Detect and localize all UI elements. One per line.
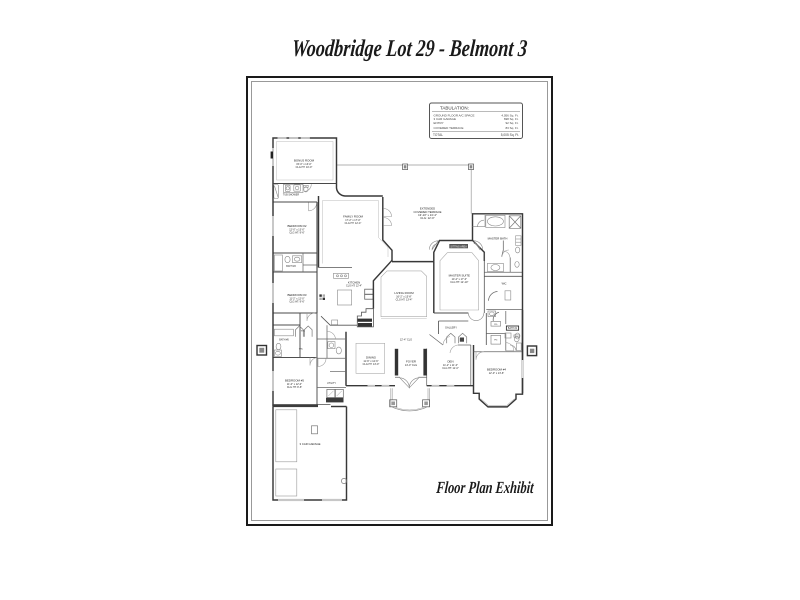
svg-text:BATH #3: BATH #3 bbox=[286, 265, 296, 268]
svg-text:CLG HT: 12'-4": CLG HT: 12'-4" bbox=[345, 222, 362, 225]
svg-text:ENTRY: ENTRY bbox=[434, 121, 444, 125]
svg-text:83 Sq. Ft.: 83 Sq. Ft. bbox=[505, 126, 518, 130]
svg-text:5,005 Sq. Ft.: 5,005 Sq. Ft. bbox=[501, 133, 519, 137]
svg-text:CLG HT: 12'-10": CLG HT: 12'-10" bbox=[450, 281, 468, 284]
svg-text:WIC: WIC bbox=[299, 348, 304, 350]
svg-text:UTILITY: UTILITY bbox=[327, 382, 336, 385]
svg-text:WIC: WIC bbox=[502, 282, 507, 285]
svg-text:3 CAR GARAGE: 3 CAR GARAGE bbox=[300, 442, 321, 446]
svg-text:CLG HT: 13'-4": CLG HT: 13'-4" bbox=[396, 298, 413, 301]
svg-text:12'-4" CLG: 12'-4" CLG bbox=[400, 339, 412, 342]
svg-text:MASTER BATH: MASTER BATH bbox=[488, 237, 508, 241]
svg-text:CLG HT: 11'-0": CLG HT: 11'-0" bbox=[442, 367, 459, 370]
svg-text:CLG HT: 10'-0": CLG HT: 10'-0" bbox=[296, 166, 313, 169]
svg-text:SITTING AREA: SITTING AREA bbox=[450, 245, 467, 248]
svg-text:CLG: 12'-0": CLG: 12'-0" bbox=[420, 216, 434, 220]
svg-text:GALLERY: GALLERY bbox=[445, 326, 457, 330]
svg-text:COVERED TERRACE: COVERED TERRACE bbox=[434, 126, 464, 130]
svg-text:CLG HT: 9'-6": CLG HT: 9'-6" bbox=[287, 386, 302, 389]
svg-text:92 Sq. Ft.: 92 Sq. Ft. bbox=[505, 121, 518, 125]
svg-text:TOTAL: TOTAL bbox=[433, 133, 443, 137]
svg-text:CLG HT: 12'-4": CLG HT: 12'-4" bbox=[346, 285, 362, 288]
svg-text:12'-0" x 13'-6": 12'-0" x 13'-6" bbox=[489, 372, 504, 375]
svg-text:CLG HT: 9'-6": CLG HT: 9'-6" bbox=[289, 231, 304, 234]
svg-text:BATH #2: BATH #2 bbox=[508, 327, 518, 330]
svg-text:PG: PG bbox=[494, 340, 497, 342]
svg-text:BATH #5: BATH #5 bbox=[279, 339, 289, 342]
svg-text:PG: PG bbox=[494, 324, 497, 326]
svg-text:CLG HT: 13'-0": CLG HT: 13'-0" bbox=[363, 363, 380, 366]
svg-text:TABULATION:: TABULATION: bbox=[440, 106, 469, 111]
svg-text:WIC: WIC bbox=[301, 331, 306, 333]
svg-text:14'-0" CLG: 14'-0" CLG bbox=[405, 364, 417, 367]
svg-text:CLG HT: 9'-6": CLG HT: 9'-6" bbox=[289, 300, 304, 303]
svg-text:TUB SHOWER: TUB SHOWER bbox=[283, 193, 299, 196]
